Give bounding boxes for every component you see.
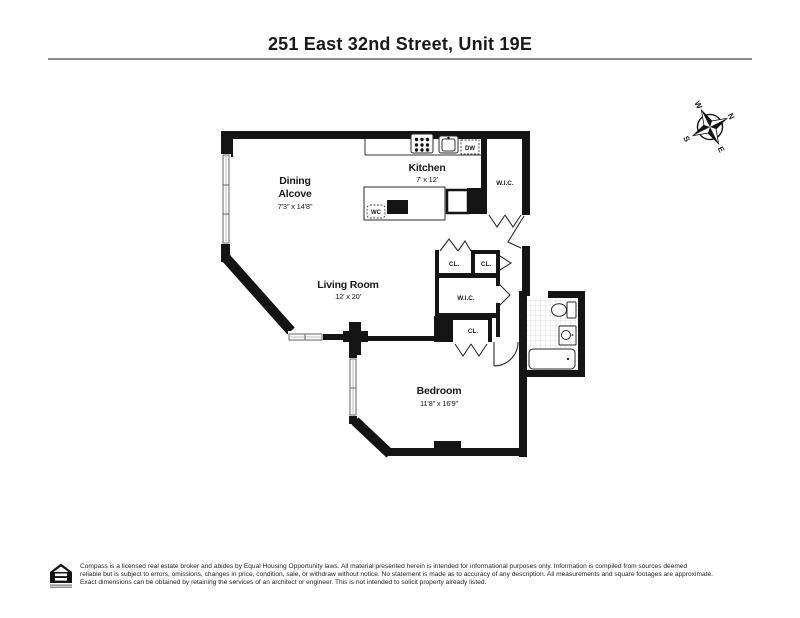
- sink-icon: [439, 136, 458, 153]
- compass-north: N: [726, 112, 737, 121]
- compass-west: W: [692, 100, 704, 111]
- dishwasher-label: DW: [465, 146, 475, 152]
- stove-icon: [411, 134, 433, 153]
- closet-1-label: CL.: [449, 261, 460, 268]
- closet-2-label: CL.: [481, 261, 492, 268]
- compass-east: E: [716, 145, 727, 154]
- dining-alcove-label-2: Alcove: [278, 188, 312, 200]
- disclaimer-line-1: Compass is a licensed real estate broker…: [80, 563, 688, 570]
- entry-door: [508, 216, 524, 248]
- wic-top-door: [489, 215, 521, 227]
- outer-walls: [221, 131, 585, 457]
- page-title: 251 East 32nd Street, Unit 19E: [268, 34, 532, 54]
- bedroom-dims: 11'8" x 16'9": [420, 399, 459, 408]
- disclaimer-line-3: Exact dimensions can be obtained by reta…: [80, 579, 487, 586]
- compass-south: S: [681, 135, 692, 144]
- living-room-label: Living Room: [317, 279, 378, 291]
- disclaimer-line-2: reliable but is subject to errors, omiss…: [80, 571, 713, 578]
- bathroom: [527, 298, 578, 370]
- footer: Compass is a licensed real estate broker…: [50, 563, 713, 588]
- wine-cooler-label: WC: [371, 210, 382, 216]
- compass-icon: N E S W: [669, 89, 747, 167]
- kitchen-island: WC: [364, 187, 445, 220]
- floor-plan-svg: 251 East 32nd Street, Unit 19E: [0, 0, 800, 618]
- bedroom-label: Bedroom: [417, 385, 462, 397]
- cooktop-icon: [387, 200, 408, 214]
- dining-alcove-dims: 7'3" x 14'8": [278, 202, 313, 211]
- bedroom-door: [494, 342, 518, 366]
- equal-housing-logo: [50, 564, 72, 588]
- wic-mid-label: W.I.C.: [457, 295, 475, 302]
- kitchen-label: Kitchen: [408, 162, 445, 174]
- kitchen-dims: 7' x 12': [416, 175, 438, 184]
- refrigerator-icon: [447, 190, 468, 213]
- dining-alcove-label-1: Dining: [279, 175, 310, 187]
- bathroom-sink-icon: [559, 326, 576, 345]
- living-room-dims: 12' x 20': [335, 292, 361, 301]
- wic-top-label: W.I.C.: [496, 180, 514, 187]
- closet-2-door: [500, 256, 511, 270]
- closet-3-label: CL.: [468, 328, 479, 335]
- closet-1-door: [440, 239, 471, 251]
- closet-3-door: [455, 344, 487, 356]
- bathtub-icon: [529, 349, 575, 369]
